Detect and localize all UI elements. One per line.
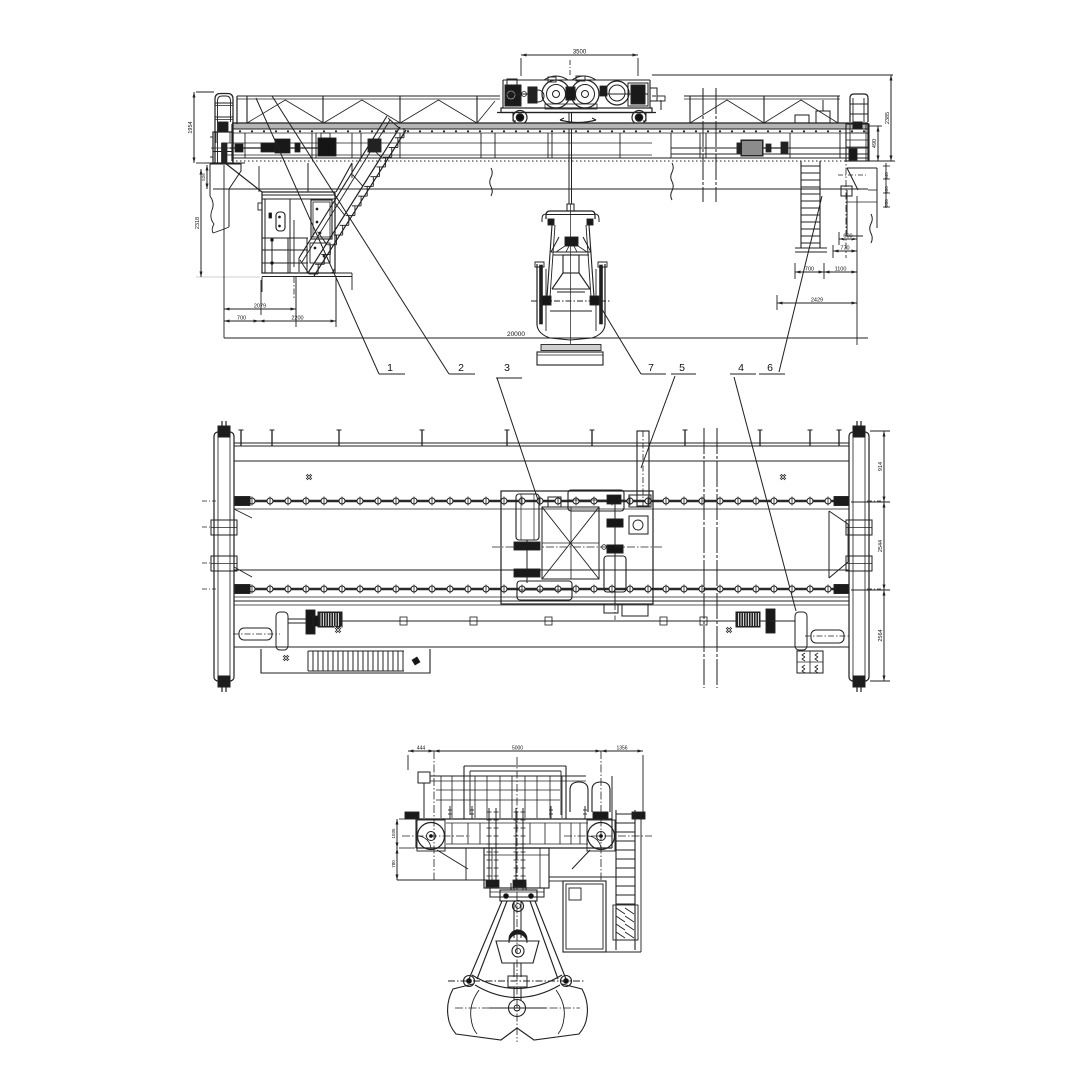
svg-text:444: 444 <box>417 746 426 752</box>
svg-text:2318: 2318 <box>195 217 201 229</box>
svg-text:2: 2 <box>458 362 464 374</box>
svg-text:700: 700 <box>237 316 246 322</box>
svg-text:780: 780 <box>391 860 396 868</box>
svg-text:3: 3 <box>504 362 510 374</box>
svg-text:20000: 20000 <box>507 331 525 338</box>
svg-text:700: 700 <box>805 267 814 273</box>
svg-text:5: 5 <box>679 362 685 374</box>
svg-text:914: 914 <box>878 462 884 471</box>
svg-text:2385: 2385 <box>885 112 891 124</box>
svg-text:490: 490 <box>872 139 878 148</box>
svg-text:1: 1 <box>387 362 393 374</box>
svg-text:940: 940 <box>884 172 889 180</box>
svg-text:4: 4 <box>738 362 744 374</box>
svg-text:950: 950 <box>884 186 889 194</box>
svg-text:2429: 2429 <box>811 298 823 304</box>
svg-text:2544: 2544 <box>878 540 884 552</box>
svg-text:7: 7 <box>648 362 654 374</box>
svg-text:2200: 2200 <box>291 316 303 322</box>
svg-text:1356: 1356 <box>616 746 627 752</box>
svg-text:2564: 2564 <box>878 629 884 641</box>
svg-text:1100: 1100 <box>835 267 847 273</box>
svg-text:1035: 1035 <box>391 828 396 839</box>
svg-text:5000: 5000 <box>512 746 523 752</box>
svg-text:3500: 3500 <box>573 50 587 56</box>
svg-text:770: 770 <box>840 246 849 252</box>
svg-text:2079: 2079 <box>254 304 266 310</box>
svg-text:6: 6 <box>767 362 773 374</box>
svg-text:1954: 1954 <box>188 121 194 133</box>
svg-text:350: 350 <box>884 199 889 207</box>
